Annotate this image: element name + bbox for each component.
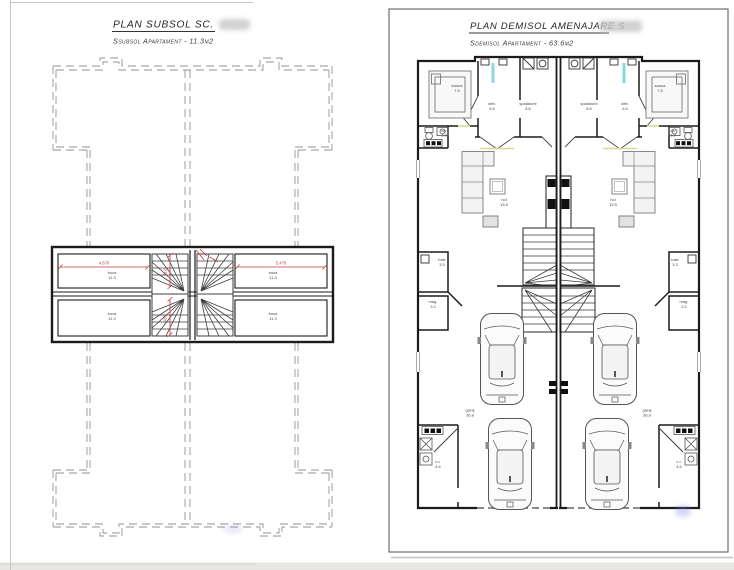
room-area-ct: 4.6: [435, 464, 441, 469]
room-area-mag: 3.2: [430, 304, 436, 309]
room-area-boxa: 11.3: [108, 316, 116, 321]
floor-plan-screenshot: PLAN SUBSOL SC. Ssubsol Apartament - 11.…: [0, 0, 734, 570]
room-area-baie: 3.3: [439, 262, 445, 267]
room-area-deb: 5.6: [622, 106, 628, 111]
room-area-sauna: 7.5: [657, 88, 663, 93]
left-sheet: PLAN SUBSOL SC. Ssubsol Apartament - 11.…: [0, 0, 333, 570]
left-panel-subtitle: Ssubsol Apartament - 11.3m2: [113, 37, 213, 46]
right-sheet: PLAN DEMISOL AMENAJARE S Sdemisol Aparta…: [389, 9, 733, 558]
room-area-mag: 3.2: [681, 304, 687, 309]
room-area-boxa: 11.3: [269, 275, 277, 280]
right-panel-subtitle: Sdemisol Apartament - 63.6m2: [470, 39, 574, 48]
subsol-block: 4,670 5,470 110 455 boxa 11.3 boxa 11.3 …: [52, 247, 333, 342]
room-area-deb: 5.6: [489, 106, 495, 111]
dim-label-v-top: 110: [163, 268, 168, 275]
room-area-spalatorie: 8.6: [586, 106, 592, 111]
dim-label-right: 5,470: [276, 261, 287, 266]
room-area-garaj: 36.8: [643, 413, 652, 418]
room-area-garaj: 36.8: [466, 413, 475, 418]
room-area-boxa: 11.3: [108, 275, 116, 280]
room-area-spalatorie: 8.6: [525, 106, 531, 111]
room-area-sauna: 7.5: [454, 88, 460, 93]
dim-label-v-bottom: 455: [163, 314, 168, 322]
room-area-hol: 15.5: [609, 202, 618, 207]
redaction-smudge: [219, 19, 250, 30]
room-area-wc: 1.9: [441, 133, 447, 138]
dim-label-left: 4,670: [99, 261, 110, 266]
watermark-smudge: [223, 524, 243, 534]
room-area-wc: 1.9: [670, 133, 676, 138]
watermark-smudge: [675, 505, 691, 517]
room-area-ct: 4.6: [676, 464, 682, 469]
left-panel-title: PLAN SUBSOL SC.: [113, 20, 214, 31]
redaction-smudge: [599, 21, 642, 33]
floorplan-svg: PLAN SUBSOL SC. Ssubsol Apartament - 11.…: [0, 0, 734, 570]
room-area-baie: 3.3: [672, 262, 678, 267]
room-area-hol: 15.5: [500, 202, 509, 207]
room-area-boxa: 11.3: [269, 316, 277, 321]
